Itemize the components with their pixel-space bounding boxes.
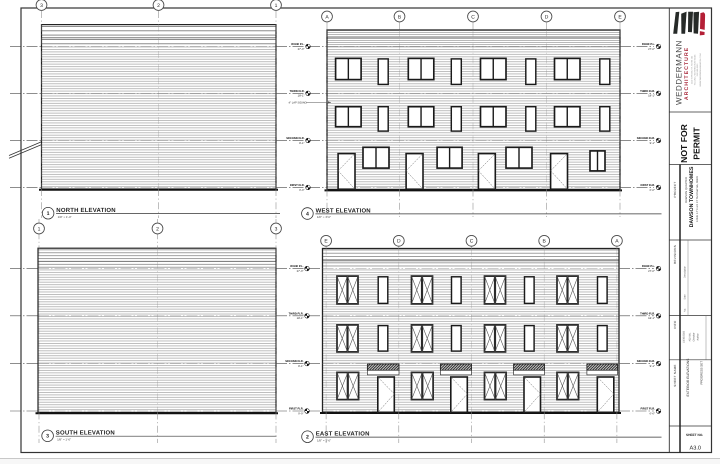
svg-text:1/8" = 1'-0": 1/8" = 1'-0": [317, 215, 331, 219]
svg-text:2: 2: [156, 226, 159, 232]
svg-text:FIRST FLR.: FIRST FLR.: [641, 408, 656, 411]
svg-text:SOUTH ELEVATION: SOUTH ELEVATION: [56, 430, 115, 437]
svg-text:INFO: INFO: [673, 320, 677, 329]
svg-text:SHEET NAME: SHEET NAME: [673, 364, 677, 386]
svg-text:12345 S TYLER ST TACOMA WA, 98: 12345 S TYLER ST TACOMA WA, 98409: [696, 175, 699, 221]
svg-text:0'-0": 0'-0": [298, 412, 303, 415]
svg-text:REVISIONS: REVISIONS: [673, 245, 677, 264]
svg-text:9'-1": 9'-1": [650, 365, 655, 368]
svg-text:3: 3: [40, 3, 43, 9]
svg-text:Description: Description: [683, 265, 686, 278]
svg-text:EXTERIOR ELEVATIONS: EXTERIOR ELEVATIONS: [686, 358, 690, 397]
svg-text:18'-1": 18'-1": [648, 317, 655, 320]
svg-text:2102 N PEARL ST, SUITE 202: 2102 N PEARL ST, SUITE 202: [691, 55, 694, 84]
svg-text:ROOF P.L.: ROOF P.L.: [290, 265, 303, 268]
svg-text:No.: No.: [683, 308, 686, 312]
svg-text:27'-0": 27'-0": [648, 270, 655, 273]
svg-text:SECOND FLR.: SECOND FLR.: [286, 137, 304, 140]
svg-text:ARCHITECTURE: ARCHITECTURE: [684, 47, 690, 100]
svg-text:18'-1": 18'-1": [297, 317, 304, 320]
svg-text:1/8" = 1'-0": 1/8" = 1'-0": [58, 215, 72, 219]
svg-text:NOT FOR: NOT FOR: [679, 123, 689, 162]
svg-text:9'-1": 9'-1": [299, 142, 304, 145]
svg-text:FIRST FLR.: FIRST FLR.: [641, 184, 656, 187]
svg-text:18'-1": 18'-1": [648, 95, 655, 98]
svg-text:27'-0": 27'-0": [298, 48, 305, 51]
svg-text:3: 3: [46, 434, 49, 440]
svg-text:THIRD FLR.: THIRD FLR.: [640, 312, 655, 315]
svg-text:THIRD FLR.: THIRD FLR.: [289, 312, 304, 315]
svg-text:253.555.0199: 253.555.0199: [696, 63, 699, 77]
svg-text:C: C: [470, 239, 474, 245]
svg-text:DAWSON TOWNHOMES: DAWSON TOWNHOMES: [689, 166, 695, 227]
svg-text:1: 1: [47, 211, 50, 217]
svg-text:SECOND FLR.: SECOND FLR.: [637, 137, 655, 140]
svg-text:ROOF P.L.: ROOF P.L.: [291, 43, 304, 46]
svg-text:THIRD FLR.: THIRD FLR.: [290, 90, 305, 93]
svg-text:ROOF P.L.: ROOF P.L.: [642, 43, 655, 46]
svg-text:3: 3: [275, 226, 278, 232]
svg-text:ROOF P.L.: ROOF P.L.: [642, 265, 655, 268]
svg-text:2: 2: [306, 435, 309, 441]
svg-text:EAST ELEVATION: EAST ELEVATION: [316, 431, 370, 438]
svg-text:FIRST FLR.: FIRST FLR.: [290, 184, 305, 187]
svg-text:WEST ELEVATION: WEST ELEVATION: [316, 207, 371, 214]
svg-text:1: 1: [275, 3, 278, 9]
svg-text:A3.0: A3.0: [690, 446, 702, 452]
svg-text:SECOND FLR.: SECOND FLR.: [637, 360, 655, 363]
svg-text:27'-0": 27'-0": [648, 48, 655, 51]
svg-text:D: D: [397, 239, 401, 245]
svg-text:1/8" = 1'-0": 1/8" = 1'-0": [317, 438, 331, 442]
svg-text:FIRST FLR.: FIRST FLR.: [289, 408, 304, 411]
svg-text:1: 1: [38, 226, 41, 232]
svg-text:DAWSON QUARTER: DAWSON QUARTER: [685, 177, 688, 203]
svg-text:1/8" = 1'-0": 1/8" = 1'-0": [57, 437, 71, 441]
svg-text:4: 4: [306, 211, 309, 217]
svg-text:TACOMA, WASHINGTON 98406: TACOMA, WASHINGTON 98406: [693, 54, 696, 85]
svg-text:SECOND FLR.: SECOND FLR.: [285, 360, 303, 363]
svg-text:0'-0": 0'-0": [650, 412, 655, 415]
svg-text:0'-0": 0'-0": [299, 189, 304, 192]
svg-text:Author: Author: [697, 333, 700, 340]
svg-text:27'-0": 27'-0": [297, 270, 304, 273]
svg-text:D: D: [545, 14, 549, 20]
svg-text:PERMIT: PERMIT: [691, 127, 701, 160]
svg-text:NORTH ELEVATION: NORTH ELEVATION: [56, 207, 115, 214]
svg-text:Date: Date: [683, 294, 686, 300]
svg-text:10/30/2023: 10/30/2023: [682, 330, 685, 343]
svg-text:THIRD FLR.: THIRD FLR.: [640, 90, 655, 93]
svg-text:Checker: Checker: [693, 332, 696, 341]
svg-text:9'-1": 9'-1": [650, 142, 655, 145]
svg-text:SHEET NO.: SHEET NO.: [686, 433, 703, 437]
svg-text:18'-1": 18'-1": [298, 95, 305, 98]
svg-text:4" LAP SIDING: 4" LAP SIDING: [289, 102, 307, 105]
svg-text:WWW.WEDDERMANNARCH.COM: WWW.WEDDERMANNARCH.COM: [699, 53, 702, 86]
svg-text:PROJECT: PROJECT: [673, 181, 677, 197]
svg-text:#22-041: #22-041: [689, 332, 692, 341]
svg-text:2: 2: [157, 3, 160, 9]
svg-text:C: C: [471, 14, 475, 20]
svg-text:PROGRESS SET: PROGRESS SET: [700, 361, 704, 385]
svg-text:0'-0": 0'-0": [650, 189, 655, 192]
svg-text:9'-1": 9'-1": [298, 365, 303, 368]
svg-text:WEDDERMANN: WEDDERMANN: [674, 40, 683, 105]
